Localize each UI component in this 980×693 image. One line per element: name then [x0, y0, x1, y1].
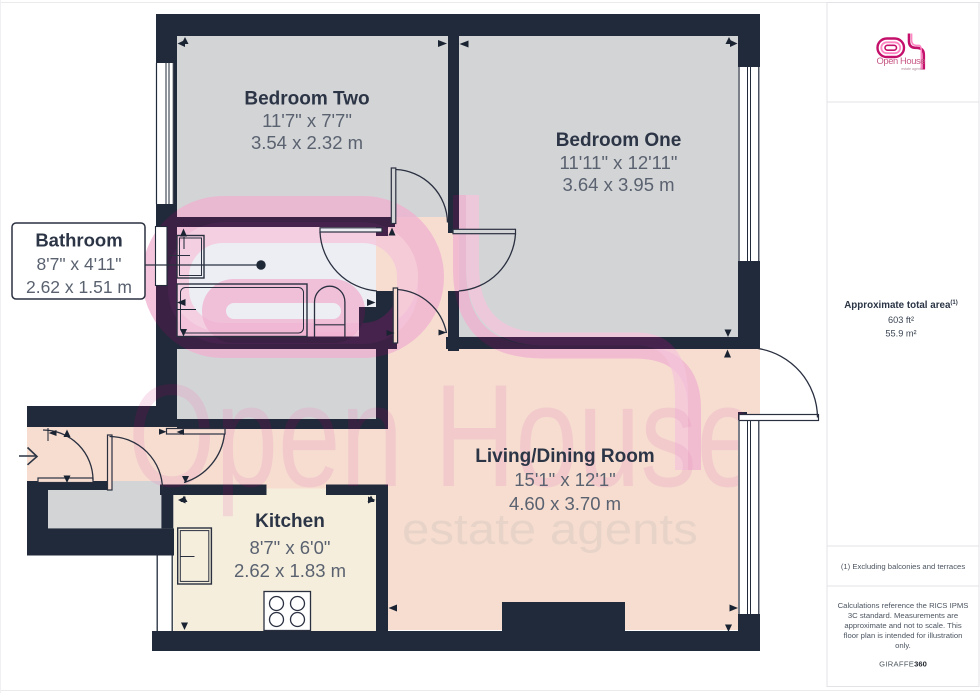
svg-text:11'11" x 12'11": 11'11" x 12'11" [560, 152, 678, 173]
svg-text:Approximate total area(1): Approximate total area(1) [844, 300, 958, 311]
svg-text:Calculations reference the RIC: Calculations reference the RICS IPMS [838, 601, 969, 610]
svg-text:Kitchen: Kitchen [255, 511, 325, 532]
svg-text:15'1" x 12'1": 15'1" x 12'1" [514, 469, 615, 490]
svg-text:only.: only. [895, 641, 911, 650]
svg-text:3.64 x 3.95 m: 3.64 x 3.95 m [562, 174, 674, 195]
svg-text:8'7" x 6'0": 8'7" x 6'0" [250, 537, 331, 558]
svg-text:Open House: Open House [877, 55, 926, 66]
svg-text:11'7" x 7'7": 11'7" x 7'7" [262, 110, 352, 131]
svg-text:Bedroom Two: Bedroom Two [244, 89, 369, 110]
svg-text:estate agents: estate agents [901, 67, 923, 71]
svg-text:2.62 x 1.83 m: 2.62 x 1.83 m [234, 560, 346, 581]
svg-text:55.9 m²: 55.9 m² [885, 329, 916, 339]
svg-text:4.60 x 3.70 m: 4.60 x 3.70 m [509, 493, 621, 514]
svg-text:3C standard. Measurements are: 3C standard. Measurements are [848, 611, 958, 620]
svg-text:(1) Excluding balconies and te: (1) Excluding balconies and terraces [841, 562, 966, 571]
svg-text:Bedroom One: Bedroom One [556, 130, 682, 151]
svg-text:3.54 x 2.32 m: 3.54 x 2.32 m [251, 132, 363, 153]
svg-text:approximate and not to scale.: approximate and not to scale. This [844, 621, 962, 630]
svg-text:603 ft²: 603 ft² [888, 315, 914, 325]
svg-text:floor plan is intended for ill: floor plan is intended for illustration [844, 631, 963, 640]
svg-text:Living/Dining Room: Living/Dining Room [475, 446, 654, 467]
svg-text:8'7" x 4'11": 8'7" x 4'11" [37, 254, 122, 274]
svg-text:GIRAFFE360: GIRAFFE360 [879, 660, 927, 669]
svg-text:2.62 x 1.51 m: 2.62 x 1.51 m [26, 277, 132, 297]
svg-text:Bathroom: Bathroom [35, 230, 122, 251]
